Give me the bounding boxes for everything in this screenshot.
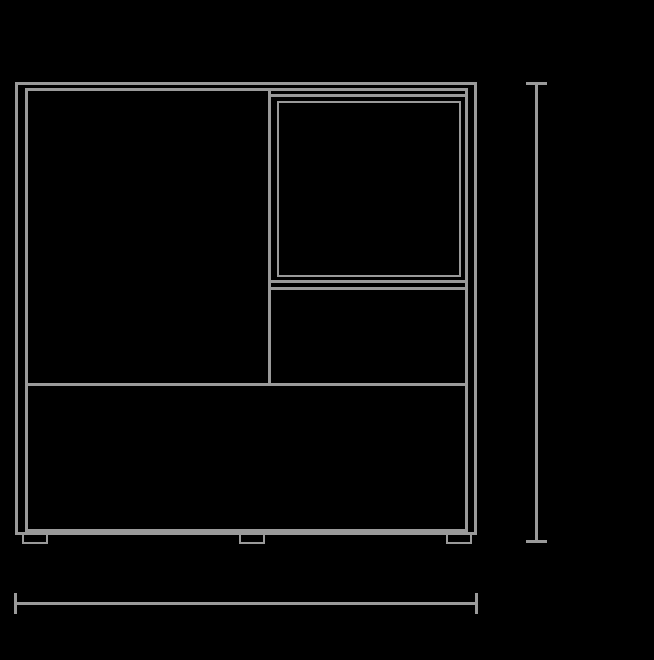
width-dimension-line bbox=[14, 602, 478, 605]
cabinet-outer-right-edge bbox=[474, 82, 477, 535]
foot-left bbox=[22, 534, 48, 544]
cabinet-outer-left-edge bbox=[15, 82, 18, 535]
height-dimension-line bbox=[535, 83, 538, 541]
right-drawer-top-edge bbox=[268, 287, 468, 290]
open-compartment-top-edge bbox=[268, 94, 468, 97]
cabinet-inner-right-edge bbox=[465, 88, 468, 532]
middle-shelf-divider bbox=[25, 383, 468, 386]
open-compartment-inset-panel bbox=[277, 101, 461, 277]
cabinet-inner-bottom-edge bbox=[25, 529, 468, 532]
cabinet-inner-left-edge bbox=[25, 88, 28, 532]
width-dimension-cap-right bbox=[475, 593, 478, 614]
open-compartment-bottom-edge bbox=[268, 280, 468, 283]
foot-right bbox=[446, 534, 472, 544]
foot-center bbox=[239, 534, 265, 544]
height-dimension-cap-top bbox=[526, 82, 547, 85]
drawing-canvas bbox=[0, 0, 654, 660]
width-dimension-cap-left bbox=[14, 593, 17, 614]
cabinet-inner-top-edge bbox=[25, 88, 468, 91]
center-vertical-divider bbox=[268, 88, 271, 386]
height-dimension-cap-bottom bbox=[526, 540, 547, 543]
cabinet-outer-top-edge bbox=[15, 82, 477, 85]
